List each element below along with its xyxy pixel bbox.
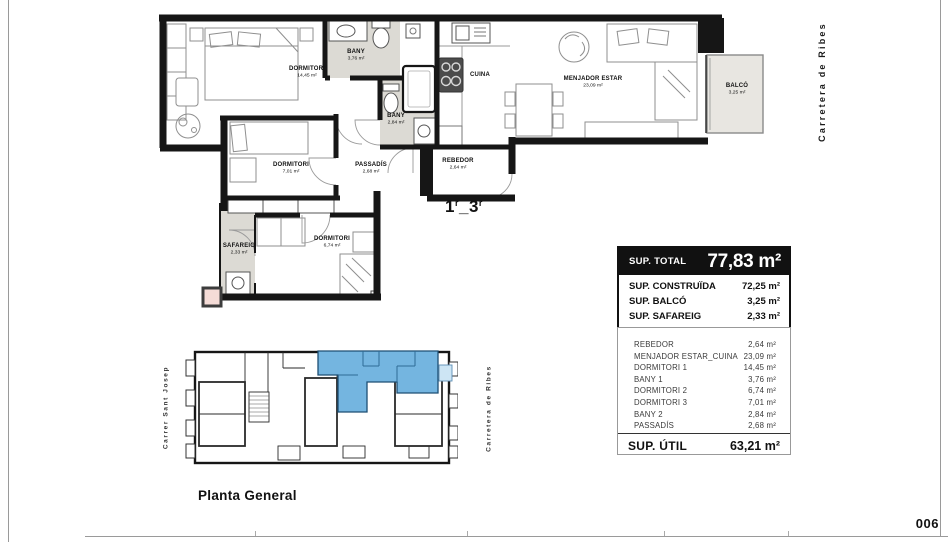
rule-tick — [255, 531, 256, 536]
shaft-square — [203, 288, 221, 306]
room-label-dormitori-2: DORMITORI 6,74 m² — [292, 236, 372, 250]
street-label-carrer-sant-josep: Carrer Sant Josep — [163, 353, 170, 463]
room-label-dormitori-1: DORMITORI 14,45 m² — [267, 66, 347, 80]
page-bottom-rule — [85, 536, 948, 537]
list-row: REBEDOR 2,64 m² — [634, 340, 776, 352]
room-name: REBEDOR — [418, 158, 498, 165]
list-row: BANY 1 3,76 m² — [634, 375, 776, 387]
room-area-rows: REBEDOR 2,64 m² MENJADOR ESTAR_CUINA 23,… — [618, 328, 790, 433]
list-row: MENJADOR ESTAR_CUINA 23,09 m² — [634, 352, 776, 364]
list-row-value: 23,09 m² — [744, 352, 776, 364]
room-area: 2,84 m² — [371, 120, 420, 126]
useful-total-value: 63,21 m² — [730, 439, 780, 453]
list-row-value: 3,76 m² — [748, 375, 776, 387]
page-number: 006 — [905, 516, 939, 531]
room-name: SAFAREIG — [209, 243, 269, 250]
room-name: BANY — [326, 49, 386, 56]
room-name: CUINA — [450, 72, 510, 79]
rule-tick — [788, 531, 789, 536]
useful-surface-total: SUP. ÚTIL 63,21 m² — [618, 433, 790, 459]
room-area: 2,64 m² — [425, 165, 491, 171]
street-label-carretera-de-ribes: Carretera de Ribes — [817, 17, 827, 147]
unit-floor-mark: 1r_3r — [445, 197, 483, 217]
room-name: BANY — [366, 113, 426, 120]
room-area: 3,76 m² — [331, 56, 380, 62]
room-label-balco: BALCÓ 3,25 m² — [707, 83, 767, 97]
room-label-passadis: PASSADÍS 2,68 m² — [331, 162, 411, 176]
total-value: 77,83 m² — [707, 251, 781, 273]
room-name: DORMITORI — [267, 66, 347, 73]
list-row-value: 6,74 m² — [748, 386, 776, 398]
summary-row-label: SUP. SAFAREIG — [629, 311, 701, 322]
room-area: 3,25 m² — [712, 90, 761, 96]
room-name: BALCÓ — [707, 83, 767, 90]
room-label-rebedor: REBEDOR 2,64 m² — [418, 158, 498, 172]
site-plan-title: Planta General — [198, 488, 297, 503]
list-row-value: 7,01 m² — [748, 398, 776, 410]
list-row: DORMITORI 2 6,74 m² — [634, 386, 776, 398]
page-left-rule — [8, 0, 9, 542]
room-area: 14,45 m² — [274, 73, 340, 79]
room-name: PASSADÍS — [331, 162, 411, 169]
room-name: DORMITORI — [251, 162, 331, 169]
list-row-value: 14,45 m² — [744, 363, 776, 375]
summary-row-value: 3,25 m² — [747, 296, 780, 307]
total-label: SUP. TOTAL — [629, 256, 686, 267]
list-row-label: DORMITORI 3 — [634, 398, 687, 410]
room-label-safareig: SAFAREIG 2,33 m² — [209, 243, 269, 257]
room-area-list-box: REBEDOR 2,64 m² MENJADOR ESTAR_CUINA 23,… — [617, 327, 791, 455]
brochure-page: DORMITORI 14,45 m² BANY 3,76 m² CUINA ME… — [0, 0, 948, 542]
room-label-cuina: CUINA — [450, 72, 510, 79]
list-row-label: BANY 2 — [634, 410, 663, 422]
room-label-menjador-estar: MENJADOR ESTAR 23,09 m² — [543, 76, 643, 90]
useful-total-label: SUP. ÚTIL — [628, 439, 687, 453]
street-label-carretera-de-ribes-small: Carretera de Ribes — [486, 354, 493, 464]
rule-tick — [467, 531, 468, 536]
summary-row-label: SUP. CONSTRUÏDA — [629, 281, 716, 292]
list-row-label: REBEDOR — [634, 340, 674, 352]
list-row-value: 2,68 m² — [748, 421, 776, 433]
list-row-label: DORMITORI 2 — [634, 386, 687, 398]
surface-summary-rows: SUP. CONSTRUÏDA 72,25 m² SUP. BALCÓ 3,25… — [619, 275, 789, 329]
room-name: DORMITORI — [292, 236, 372, 243]
list-row-value: 2,84 m² — [748, 410, 776, 422]
room-label-dormitori-3: DORMITORI 7,01 m² — [251, 162, 331, 176]
list-row-value: 2,64 m² — [748, 340, 776, 352]
room-area: 23,09 m² — [552, 83, 634, 89]
room-label-bany-1: BANY 3,76 m² — [326, 49, 386, 63]
list-row: DORMITORI 1 14,45 m² — [634, 363, 776, 375]
room-area: 7,01 m² — [258, 169, 324, 175]
room-area: 2,68 m² — [338, 169, 404, 175]
room-area: 2,33 m² — [214, 250, 263, 256]
summary-row: SUP. CONSTRUÏDA 72,25 m² — [629, 279, 780, 294]
list-row-label: MENJADOR ESTAR_CUINA — [634, 352, 738, 364]
room-name: MENJADOR ESTAR — [543, 76, 643, 83]
list-row: PASSADÍS 2,68 m² — [634, 421, 776, 433]
summary-row-value: 2,33 m² — [747, 311, 780, 322]
list-row-label: DORMITORI 1 — [634, 363, 687, 375]
summary-row-label: SUP. BALCÓ — [629, 296, 686, 307]
site-plan-drawing — [183, 348, 458, 468]
list-row-label: PASSADÍS — [634, 421, 674, 433]
room-area: 6,74 m² — [299, 243, 365, 249]
summary-row: SUP. SAFAREIG 2,33 m² — [629, 309, 780, 324]
list-row-label: BANY 1 — [634, 375, 663, 387]
rule-tick — [664, 531, 665, 536]
summary-row: SUP. BALCÓ 3,25 m² — [629, 294, 780, 309]
room-label-bany-2: BANY 2,84 m² — [366, 113, 426, 127]
page-right-rule — [940, 0, 941, 537]
summary-row-value: 72,25 m² — [742, 281, 780, 292]
surface-total-header: SUP. TOTAL 77,83 m² — [619, 248, 789, 275]
list-row: BANY 2 2,84 m² — [634, 410, 776, 422]
list-row: DORMITORI 3 7,01 m² — [634, 398, 776, 410]
surface-summary-box: SUP. TOTAL 77,83 m² SUP. CONSTRUÏDA 72,2… — [617, 246, 791, 331]
